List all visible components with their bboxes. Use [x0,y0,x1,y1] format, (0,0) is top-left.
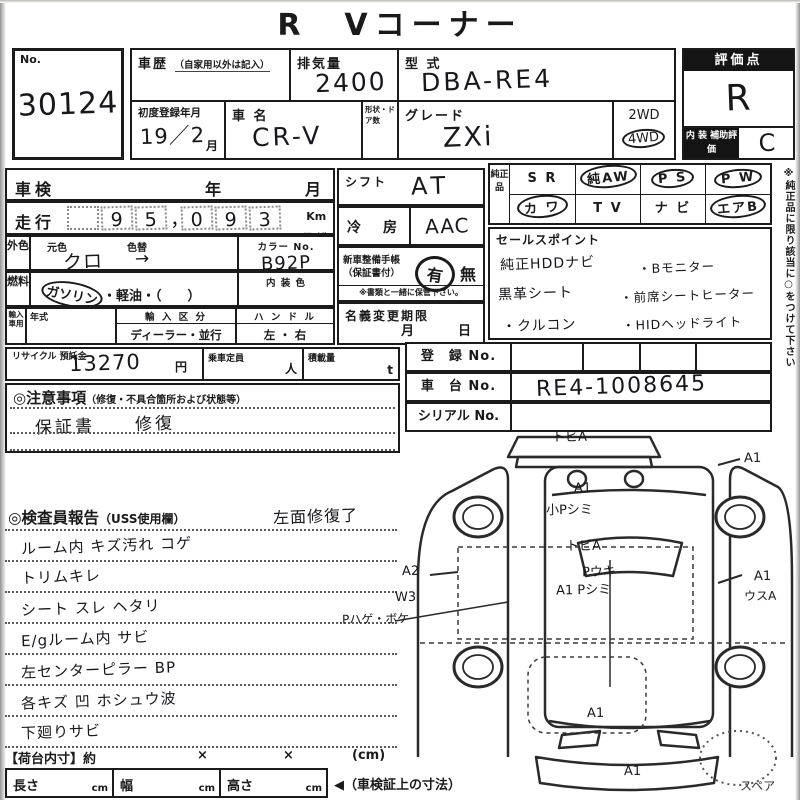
service-book-cell: 新車整備手帳（保証書付） 有 無 ※書類と一緒に保管下さい。 [337,246,485,302]
car-damage-diagram: トビA A1 小Pシミ トビA Pウキ A1 Pシミ A2 W3 Pハゲ・ボケ … [340,425,800,800]
diagram-label-p-uki: Pウキ [582,561,616,581]
interior-rating-row: 内 装 補助評価 C [684,126,793,158]
chassis-no-row: 車 台 No. RE4-1008645 [405,372,772,402]
car-name-label: 車 名 [232,105,269,124]
import-year-cell: 年式 [27,309,117,343]
body-doors-label: 形状・ドア数 [365,105,397,126]
diagram-label-roof-shimi: 小Pシミ [546,499,593,519]
genuine-kawa: カ ワ [510,194,575,223]
sales-points-box: セールスポイント 純正HDDナビ ・Bモニター 黒革シート ・前席シートヒーター… [488,227,772,340]
import-row: 輸入車用 年式 輸 入 区 分 ディーラー・並行 ハ ン ド ル 左 ・ 右 [5,307,335,345]
inspector-line: E/gルーム内 サビ [5,624,397,655]
car-diagram-art [340,425,800,800]
fuel-row: 燃料 ガソリン・軽油・（ ） 内 装 色 [5,271,335,307]
width-label: 幅 [120,775,133,794]
handle-value: 左 ・ 右 [237,327,333,343]
odometer-digit-blank [67,206,99,230]
first-registration-label: 初度登録年月 [138,105,201,120]
load-label: 積載量 [308,351,335,364]
inspector-line-text: E/gルーム内 サビ [21,626,150,651]
car-name-cell: 車 名 CR-V [224,100,363,160]
inspector-line-text: 左センターピラー BP [21,656,177,682]
lot-number-value: 30124 [14,85,121,124]
name-change-day: 日 [458,320,471,339]
shift-value: AT [411,171,451,200]
exterior-color-row: 外色 元色 クロ 色替 → カラー No. B92P [5,235,335,271]
inspector-line: 下廻りサビ [5,717,397,748]
genuine-navi: ナ ビ [640,194,705,223]
capacity-label: 乗車定員 [208,351,244,364]
registration-no-row: 登 録 No. [405,342,772,372]
load-unit: t [387,363,393,377]
odometer-digits: 9 5 ， 0 9 3 [67,206,281,230]
odometer-unit-km: Km [306,210,326,223]
genuine-pw: P W [705,165,770,194]
auction-sheet: R Vコーナー No. 30124 車歴 （自家用以外は記入） 排気量 2400… [0,0,800,800]
drivetrain-4wd-selected: 4WD [622,127,667,150]
sheet-title: R Vコーナー [0,0,800,44]
length-label: 長さ [13,775,39,794]
dotted-line [10,449,395,451]
aircon-cell: 冷 房 AAC [337,206,485,246]
shaken-label: 車検 [15,176,55,200]
cargo-header-label: 【荷台内寸】約 [5,752,96,767]
aircon-value: AAC [424,213,469,239]
odometer-digit: 9 [101,205,134,230]
grade-label: グレード [405,105,465,124]
model-code-value: DBA-RE4 [421,64,554,98]
sales-points-header: セールスポイント [496,231,600,248]
cautions-header: ◎注意事項 [13,389,86,407]
genuine-parts-grid: S R 純AW P S P W カ ワ T V ナ ビ エアB [510,165,770,223]
color-no-cell: カラー No. B92P [237,237,333,269]
shaken-row: 車検 年 月 [5,168,335,201]
shaken-dims-note: ◀（車検証上の寸法） [334,774,461,793]
sales-point: 純正HDDナビ [500,251,596,274]
cautions-box: ◎注意事項（修復・不具合箇所および状態等） 保証書 修復 [5,383,400,453]
recycle-unit: 円 [175,358,187,375]
length-unit: cm [92,783,108,794]
diagram-label-a2: A2 [402,564,419,579]
inspector-header: ◎検査員報告 [8,509,99,527]
diagram-label-a1-pshimi: A1 Pシミ [556,579,611,599]
interior-color-cell: 内 装 色 [237,273,333,305]
cargo-unit: (cm) [352,748,385,763]
inspector-header-row: ◎検査員報告（USS使用欄） 左面修復了 [5,505,397,531]
interior-color-label: 内 装 色 [239,275,333,289]
import-label: 輸入車用 [9,310,24,328]
handle-label: ハ ン ド ル [237,309,333,324]
odometer-comma: ， [169,206,179,230]
drivetrain-options: 2WD 4WD [612,102,674,158]
divider [695,344,697,370]
width-cell: 幅 cm [112,768,221,798]
serial-no-row: シリアル No. [405,402,772,432]
diagram-label-usu-a: ウスA [744,587,777,605]
history-label: 車歴 [138,57,168,72]
inspector-line-text: ルーム内 キズ汚れ コゲ [21,532,193,559]
capacity-cell: 乗車定員 人 [202,349,302,379]
spare-tire-label: スペア [740,777,775,794]
cautions-header-note: （修復・不具合箇所および状態等） [86,395,246,406]
height-unit: cm [306,783,322,794]
divider [582,344,584,370]
grade-value: ZXi [442,121,494,154]
cargo-dims-header: 【荷台内寸】約 × × (cm) [5,748,397,766]
inspector-line-text: トリムキレ [21,565,102,589]
sales-point: 黒革シート [498,282,574,305]
capacity-unit: 人 [285,360,297,377]
history-note: （自家用以外は記入） [175,60,270,72]
fuel-label: 燃料 [7,275,29,288]
diagram-label-a1-right-low: A1 [754,569,771,584]
genuine-aw: 純AW [575,165,640,194]
diagram-label-a1-right-top: A1 [744,451,761,466]
car-name-value: CR-V [252,121,323,152]
serial-no-value [512,404,770,430]
drivetrain-2wd: 2WD [614,108,674,123]
handle-cell: ハ ン ド ル 左 ・ 右 [237,309,333,343]
odometer-label: 走行 [15,209,55,233]
inspector-line-text: 各キズ 凹 ホシュウ波 [21,687,177,713]
inspector-header-note: （USS使用欄） [99,512,186,526]
shift-cell: シフト AT [337,168,485,206]
grade-cell: グレード ZXi 2WD 4WD [397,100,676,160]
cargo-x1: × [197,748,208,763]
odometer-row: 走行 9 5 ， 0 9 3 Km マイル [5,201,335,235]
serial-no-label: シリアル No. [407,404,512,430]
inspector-line: 各キズ 凹 ホシュウ波 [5,686,397,717]
interior-rating-label: 内 装 補助評価 [684,128,739,158]
genuine-sr: S R [510,165,575,194]
inspector-line-text: シート スレ ヘタリ [21,595,161,621]
genuine-parts-vertical-note: ※純正品に限り該当に○をつけて下さい [776,168,796,460]
import-year-label: 年式 [30,310,48,323]
displacement-cell: 排気量 2400 [289,48,399,102]
name-change-cell: 名義変更期限 月 日 [337,302,485,345]
genuine-tv: T V [575,194,640,223]
service-book-sublabel: （保証書付） [343,268,400,279]
load-cell: 積載量 t [302,349,398,379]
body-doors-cell: 形状・ドア数 [361,100,399,160]
dotted-line [10,407,395,409]
model-code-cell: 型 式 DBA-RE4 [397,48,676,102]
inspector-line: ルーム内 キズ汚れ コゲ [5,531,397,562]
height-label: 高さ [227,775,253,794]
lot-number-box: No. 30124 [12,48,124,160]
shaken-month-label: 月 [305,176,321,200]
lot-number-label: No. [20,53,41,66]
name-change-header: 名義変更期限 [345,307,429,324]
height-cell: 高さ cm [219,768,328,798]
diagram-label-a1-bumper: A1 [624,764,641,779]
cargo-x2: × [283,748,294,763]
diagram-label-a1-hood: A1 [587,706,604,721]
divider [639,344,641,370]
fuel-other-options: ・軽油・（ ） [103,289,201,304]
first-registration-cell: 初度登録年月 19／2 月 [130,100,226,160]
shift-label: シフト [345,173,387,190]
service-book-no: 無 [460,261,476,285]
interior-rating-value: C [742,128,794,158]
sales-point: ・前席シートヒーター [620,283,756,307]
genuine-ps: P S [640,165,705,194]
inspector-line: トリムキレ [5,562,397,593]
inspector-line: シート スレ ヘタリ [5,593,397,624]
genuine-airbag: エアB [705,194,770,223]
rating-value: R [683,76,793,121]
service-book-label: 新車整備手帳 [343,255,400,266]
sales-point: ・HIDヘッドライト [622,311,743,334]
sales-point: ・Bモニター [638,256,716,278]
diagram-label-tobi-mid: トビA [566,535,601,555]
inspector-side-note: 左面修復了 [273,502,359,529]
name-change-month: 月 [401,320,414,339]
spare-tire-circle [700,731,776,785]
import-division-value: ディーラー・並行 [117,327,235,343]
odometer-digit: 0 [180,205,213,230]
import-division-cell: 輸 入 区 分 ディーラー・並行 [117,309,237,343]
color-change-value: → [135,249,151,270]
chassis-no-label: 車 台 No. [407,374,512,400]
displacement-value: 2400 [315,67,388,98]
width-unit: cm [199,783,215,794]
aircon-label: 冷 房 [347,217,401,237]
import-division-label: 輸 入 区 分 [117,309,235,324]
inspector-line: 左センターピラー BP [5,655,397,686]
shaken-year-label: 年 [205,176,221,200]
chassis-no-value: RE4-1008645 [536,371,708,402]
first-registration-value: 19／2 [139,119,205,151]
rating-box: 評価点 R 内 装 補助評価 C [682,48,795,160]
dotted-line [10,432,395,434]
registration-no-label: 登 録 No. [407,344,512,370]
diagram-label-roof-a1: A1 [574,481,591,496]
sales-point: ・クルコン [502,314,577,337]
odometer-digit: 9 [214,205,247,230]
diagram-label-w3: W3 [395,590,416,605]
recycle-row: リサイクル 預託金 13270 円 乗車定員 人 積載量 t [5,347,400,381]
rating-header: 評価点 [684,50,793,71]
inspector-line-text: 下廻りサビ [21,720,102,744]
registration-no-value [512,344,770,370]
color-no-label: カラー No. [239,239,333,253]
genuine-parts-label: 純正品 [490,170,508,193]
odometer-digit: 5 [135,205,168,230]
exterior-color-label: 外色 [7,239,29,252]
first-registration-month-suffix: 月 [206,137,218,154]
genuine-parts-box: 純正品 S R 純AW P S P W カ ワ T V ナ ビ エアB [488,163,772,225]
history-cell: 車歴 （自家用以外は記入） [130,48,291,102]
length-cell: 長さ cm [5,768,114,798]
recycle-value: 13270 [69,350,142,376]
service-book-note: ※書類と一緒に保管下さい。 [339,285,483,300]
odometer-digit: 3 [248,205,281,230]
